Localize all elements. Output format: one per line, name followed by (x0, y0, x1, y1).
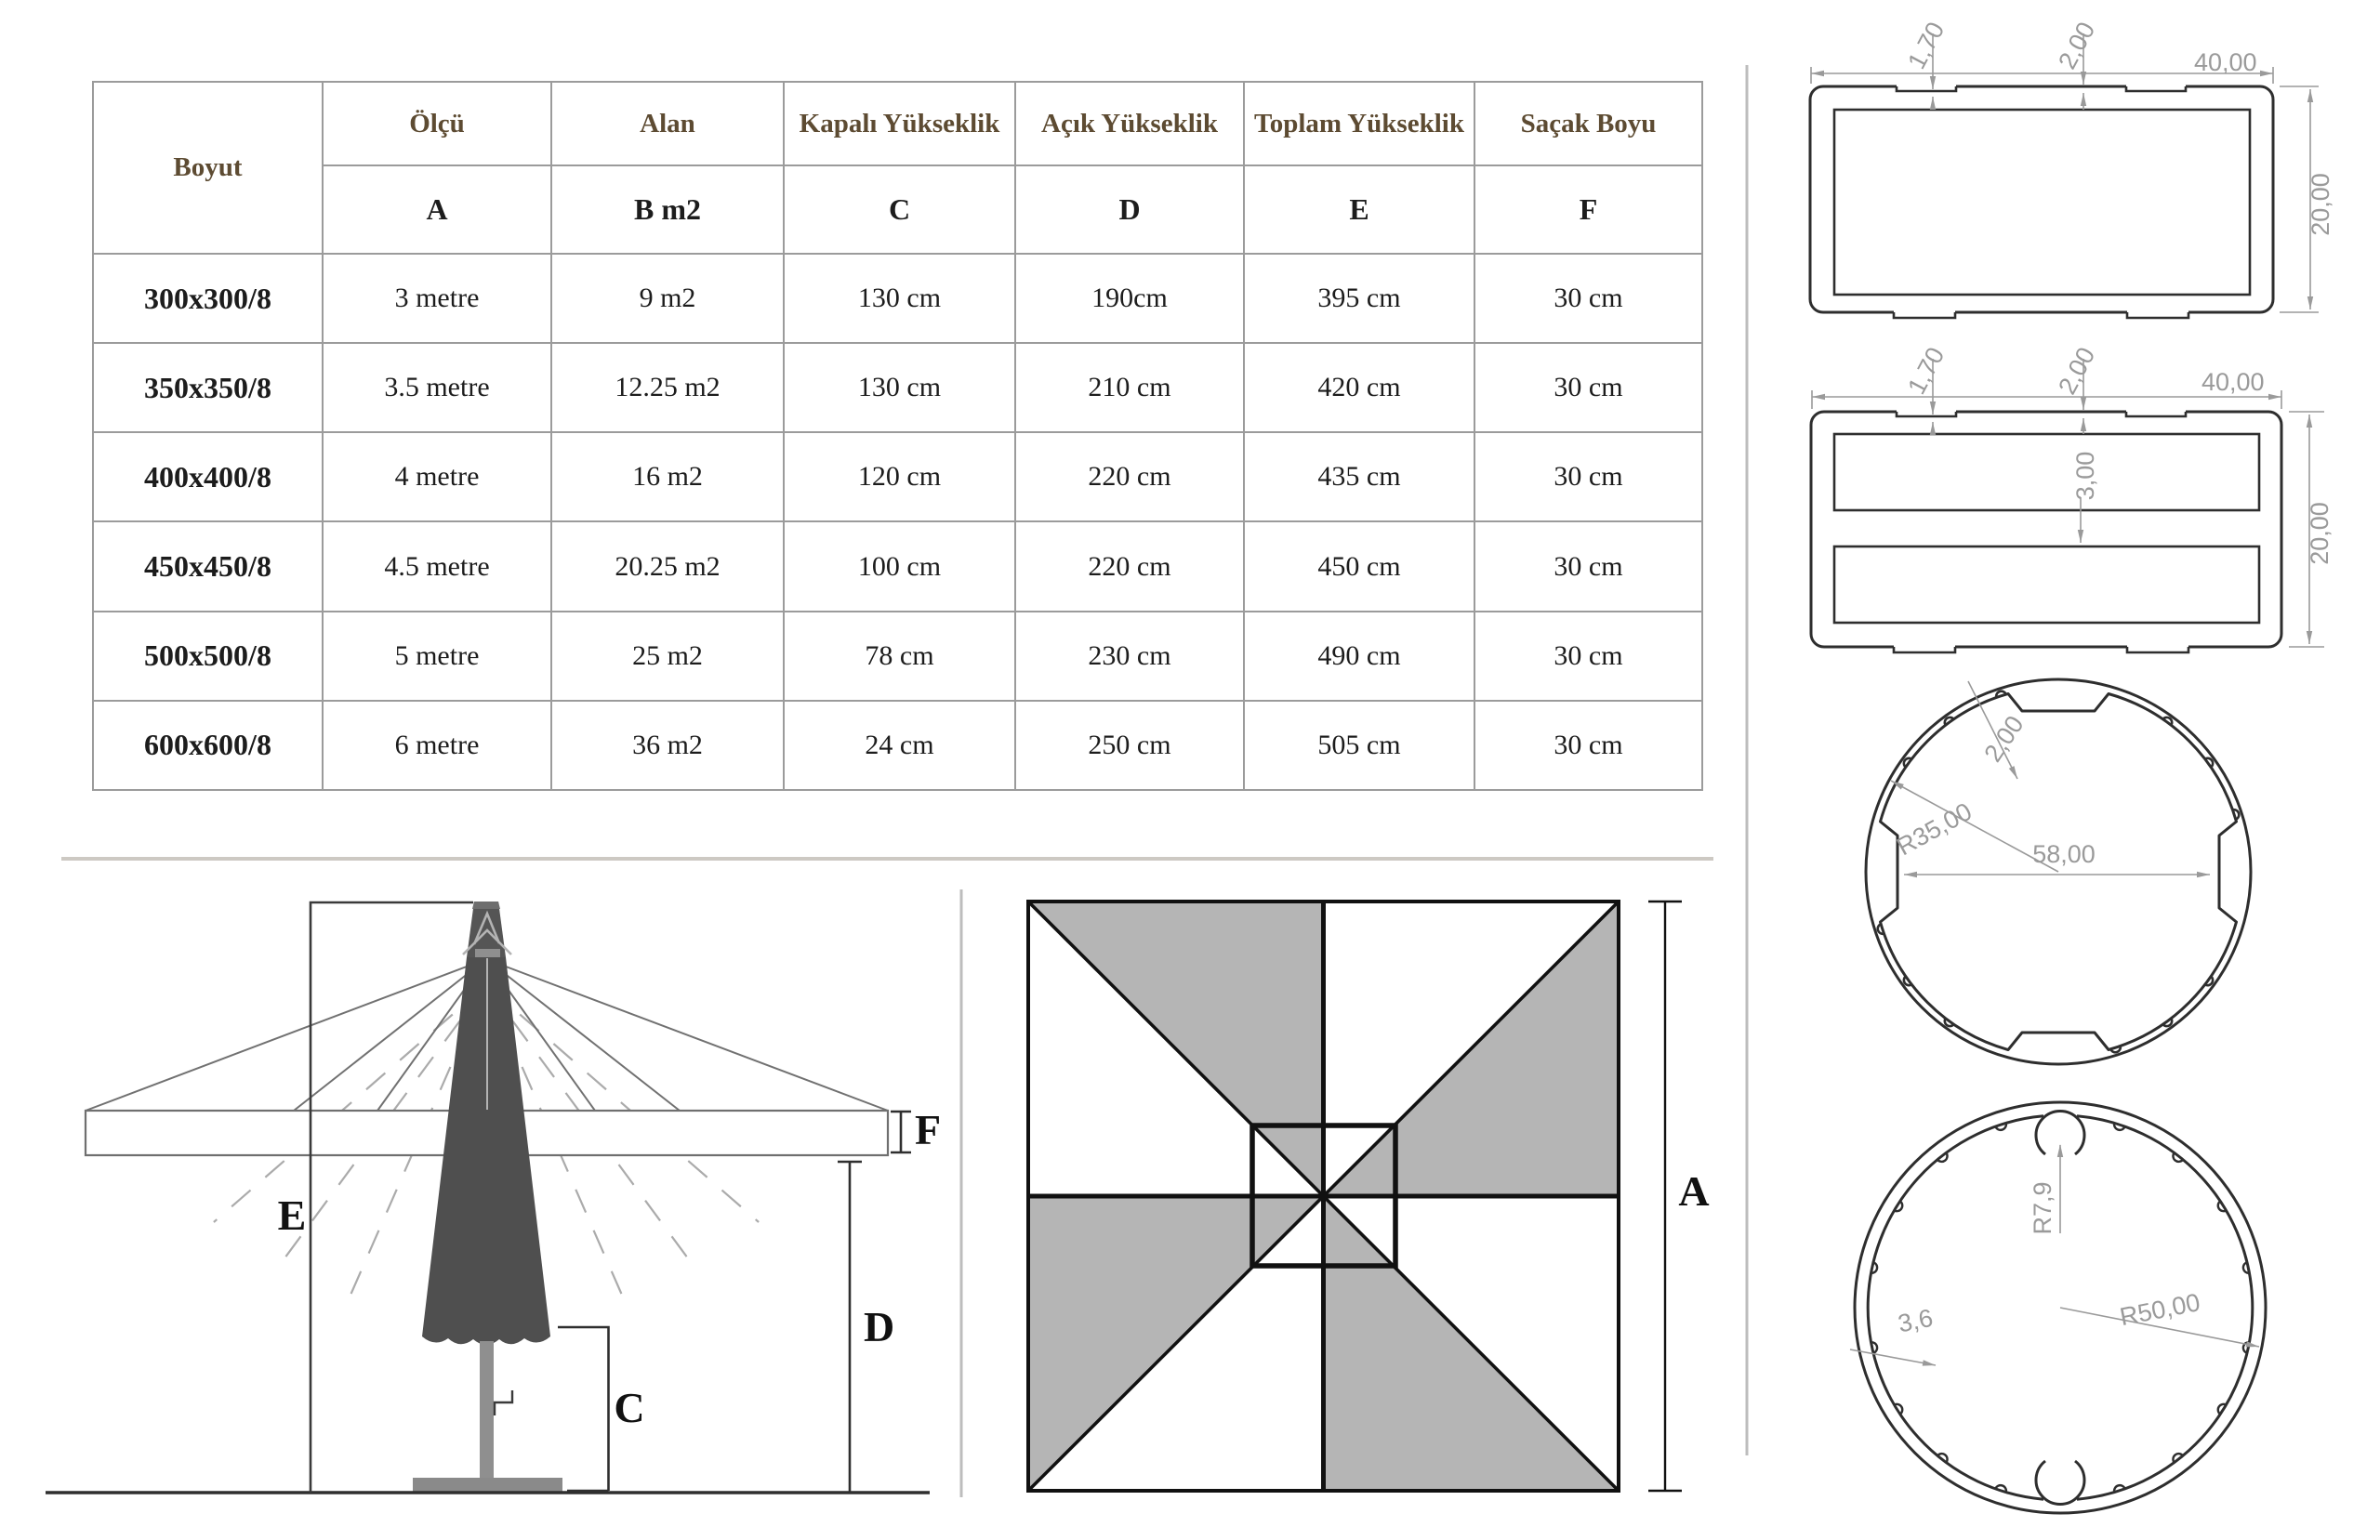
svg-text:40,00: 40,00 (2201, 368, 2265, 396)
svg-text:3,6: 3,6 (1896, 1304, 1936, 1338)
svg-text:3,00: 3,00 (2071, 452, 2099, 501)
svg-text:2,00: 2,00 (2053, 343, 2100, 399)
svg-text:R7,9: R7,9 (2029, 1181, 2056, 1234)
svg-text:R50,00: R50,00 (2118, 1288, 2202, 1331)
svg-text:58,00: 58,00 (2032, 840, 2096, 868)
svg-text:D: D (864, 1303, 894, 1350)
svg-text:2,00: 2,00 (2053, 18, 2100, 73)
svg-text:20,00: 20,00 (2307, 173, 2334, 236)
svg-text:E: E (278, 1191, 307, 1239)
svg-text:1,70: 1,70 (1902, 18, 1950, 73)
svg-text:2,00: 2,00 (1978, 711, 2029, 767)
svg-text:1,70: 1,70 (1902, 343, 1950, 399)
svg-text:A: A (1678, 1167, 1709, 1215)
svg-text:40,00: 40,00 (2194, 48, 2257, 76)
svg-text:20,00: 20,00 (2306, 502, 2334, 565)
svg-text:C: C (614, 1384, 644, 1431)
svg-text:F: F (915, 1106, 941, 1153)
svg-text:R35,00: R35,00 (1892, 797, 1977, 861)
